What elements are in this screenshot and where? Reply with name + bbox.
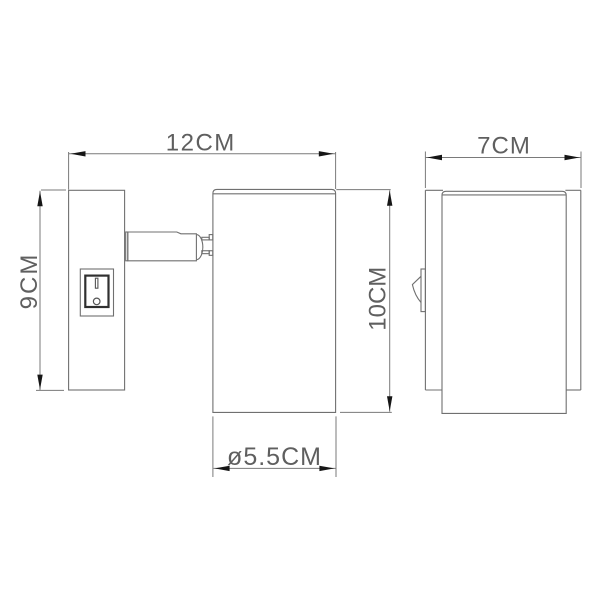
svg-text:10CM: 10CM (365, 267, 392, 331)
svg-text:9CM: 9CM (16, 253, 43, 310)
svg-text:12CM: 12CM (166, 129, 236, 156)
svg-text:7CM: 7CM (477, 133, 531, 160)
svg-text:ø5.5CM: ø5.5CM (227, 443, 322, 471)
